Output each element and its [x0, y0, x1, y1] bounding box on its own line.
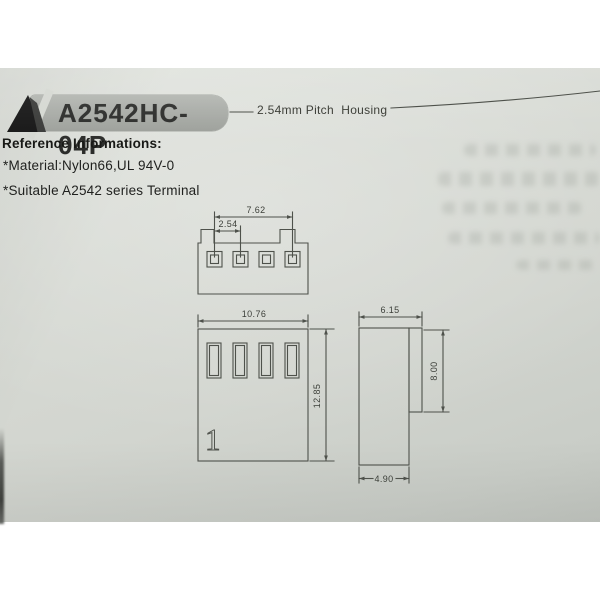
part-number: A2542HC-04P — [58, 97, 228, 161]
part-number-badge: A2542HC-04P — [30, 95, 228, 131]
show-through-smudge — [438, 172, 600, 186]
show-through-smudge — [464, 144, 596, 156]
show-through-smudge — [442, 202, 582, 214]
show-through-smudge — [516, 260, 600, 270]
part-subtitle: 2.54mm Pitch Housing — [257, 103, 387, 117]
reference-item-material: *Material:Nylon66,UL 94V-0 — [3, 158, 174, 173]
datasheet-photo: A2542HC-04P 2.54mm Pitch Housing Referen… — [0, 68, 600, 522]
reference-item-suitable: *Suitable A2542 series Terminal — [3, 183, 200, 198]
show-through-smudge — [448, 232, 600, 244]
black-triangle-logo-icon — [4, 93, 56, 135]
photo-edge — [0, 428, 4, 524]
screenshot-root: A2542HC-04P 2.54mm Pitch Housing Referen… — [0, 0, 600, 600]
reference-heading: Reference Informations: — [2, 136, 162, 151]
